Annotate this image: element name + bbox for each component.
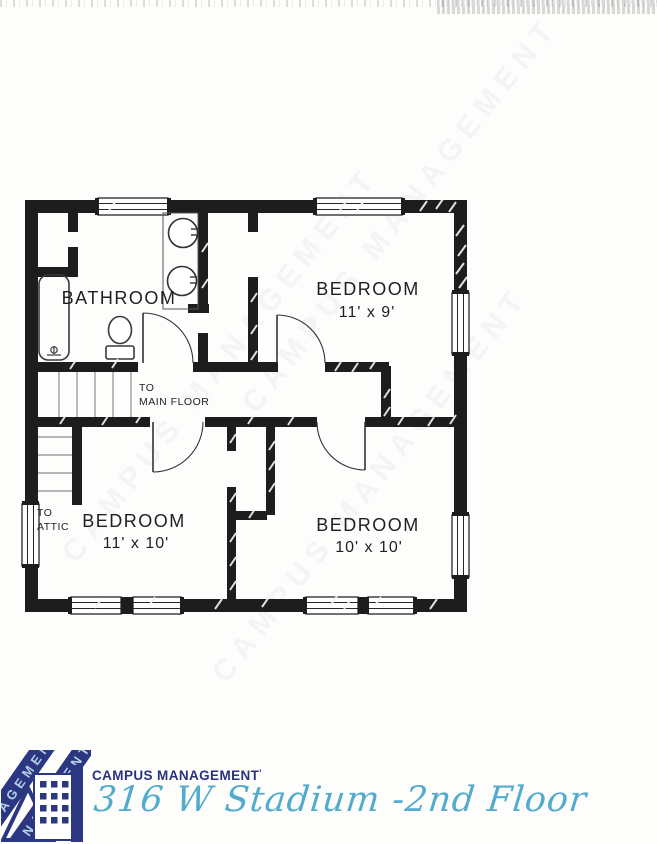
to-main-floor-line2: MAIN FLOOR xyxy=(139,396,209,408)
to-attic-line1: TO xyxy=(37,507,52,519)
scanned-floor-plan-page: CAMPUS MANAGEMENT CAMPUS MANAGEMENT CAMP… xyxy=(0,0,657,844)
door-bedroom-se xyxy=(317,422,365,470)
window-bottom-right-b xyxy=(358,597,417,614)
window-right-lower xyxy=(452,512,469,579)
sink-1 xyxy=(169,219,199,248)
stairs-to-main-floor xyxy=(59,372,131,417)
dims-bedroom-se: 10' x 10' xyxy=(335,539,403,556)
wall-closet-top xyxy=(205,417,317,427)
page-title: 316 W Stadium -2nd Floor xyxy=(92,782,589,819)
brand-trademark-tick: ' xyxy=(259,768,262,778)
label-bedroom-se: BEDROOM xyxy=(316,515,420,535)
campus-management-logo: MANAGEMENT MANAGEMENT xyxy=(1,750,91,842)
window-top-left xyxy=(95,198,171,215)
to-main-floor-line1: TO xyxy=(139,382,154,394)
floor-plan-drawing: CAMPUS MANAGEMENT CAMPUS MANAGEMENT CAMP… xyxy=(0,0,657,746)
window-bottom-left-a xyxy=(68,597,121,614)
wall-stub-bath-top xyxy=(68,213,78,232)
logo-tower xyxy=(71,765,83,842)
door-bathroom xyxy=(143,313,193,363)
label-bedroom-ne: BEDROOM xyxy=(316,279,420,299)
label-bedroom-sw: BEDROOM xyxy=(82,511,186,531)
wall-stairs-south xyxy=(25,417,150,427)
wall-tub-niche-stub xyxy=(68,247,78,267)
wall-attic-stairs xyxy=(72,425,82,505)
label-bathroom: BATHROOM xyxy=(62,288,177,308)
stairs-to-attic xyxy=(38,437,72,491)
dims-bedroom-sw: 11' x 10' xyxy=(103,535,169,552)
wall-vanity-upper xyxy=(198,213,208,312)
to-attic-line2: ATTIC xyxy=(37,521,69,533)
window-right-upper xyxy=(452,290,469,356)
annotation-to-attic: TO ATTIC xyxy=(37,507,69,533)
wall-hall-north-mid xyxy=(193,362,278,372)
dims-bedroom-ne: 11' x 9' xyxy=(339,304,396,321)
footer-brand-area: MANAGEMENT MANAGEMENT CAMPUS MANAGEMENT'… xyxy=(0,746,657,844)
toilet xyxy=(106,317,134,360)
wall-bedroom-ne-stub xyxy=(248,213,258,232)
wall-closet-divider xyxy=(266,427,275,515)
wall-bathroom-south xyxy=(30,362,138,372)
